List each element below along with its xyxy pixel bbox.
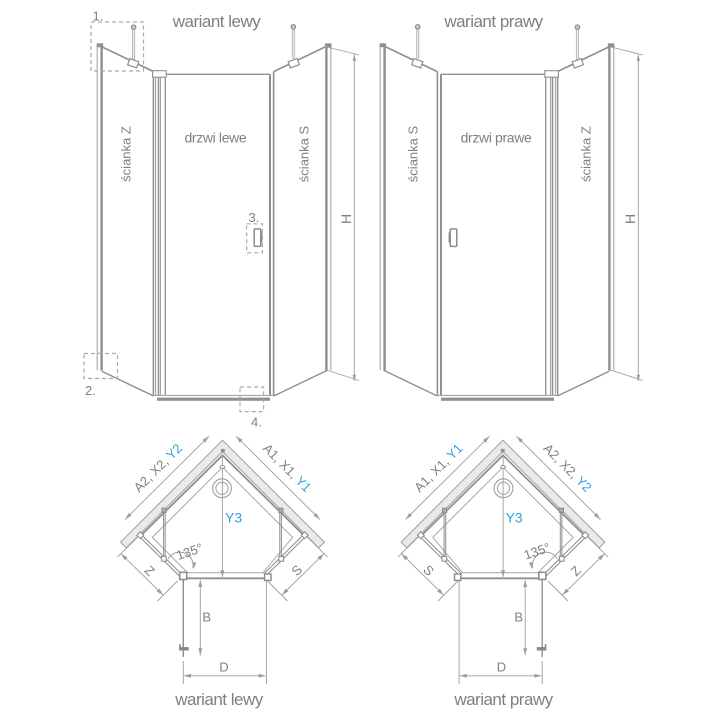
svg-text:wariant prawy: wariant prawy — [443, 12, 543, 31]
svg-text:wariant prawy: wariant prawy — [453, 690, 553, 709]
svg-text:Y3: Y3 — [506, 509, 523, 525]
svg-text:3.: 3. — [249, 210, 260, 225]
svg-text:drzwi lewe: drzwi lewe — [184, 130, 246, 146]
svg-text:B: B — [202, 609, 211, 624]
svg-text:2.: 2. — [85, 383, 96, 398]
svg-text:drzwi prawe: drzwi prawe — [461, 130, 532, 146]
svg-text:ścianka Z: ścianka Z — [118, 126, 133, 182]
svg-text:wariant lewy: wariant lewy — [172, 12, 262, 31]
svg-text:1.: 1. — [93, 9, 104, 24]
svg-text:D: D — [219, 659, 228, 674]
svg-text:ścianka S: ścianka S — [297, 125, 312, 182]
svg-text:H: H — [622, 214, 638, 224]
svg-text:4.: 4. — [251, 414, 262, 429]
svg-text:B: B — [514, 609, 523, 624]
svg-text:Y3: Y3 — [225, 509, 242, 525]
svg-text:D: D — [497, 659, 506, 674]
svg-text:H: H — [338, 214, 354, 224]
svg-text:wariant lewy: wariant lewy — [174, 690, 264, 709]
svg-text:ścianka S: ścianka S — [406, 125, 421, 182]
svg-text:ścianka Z: ścianka Z — [579, 126, 594, 182]
